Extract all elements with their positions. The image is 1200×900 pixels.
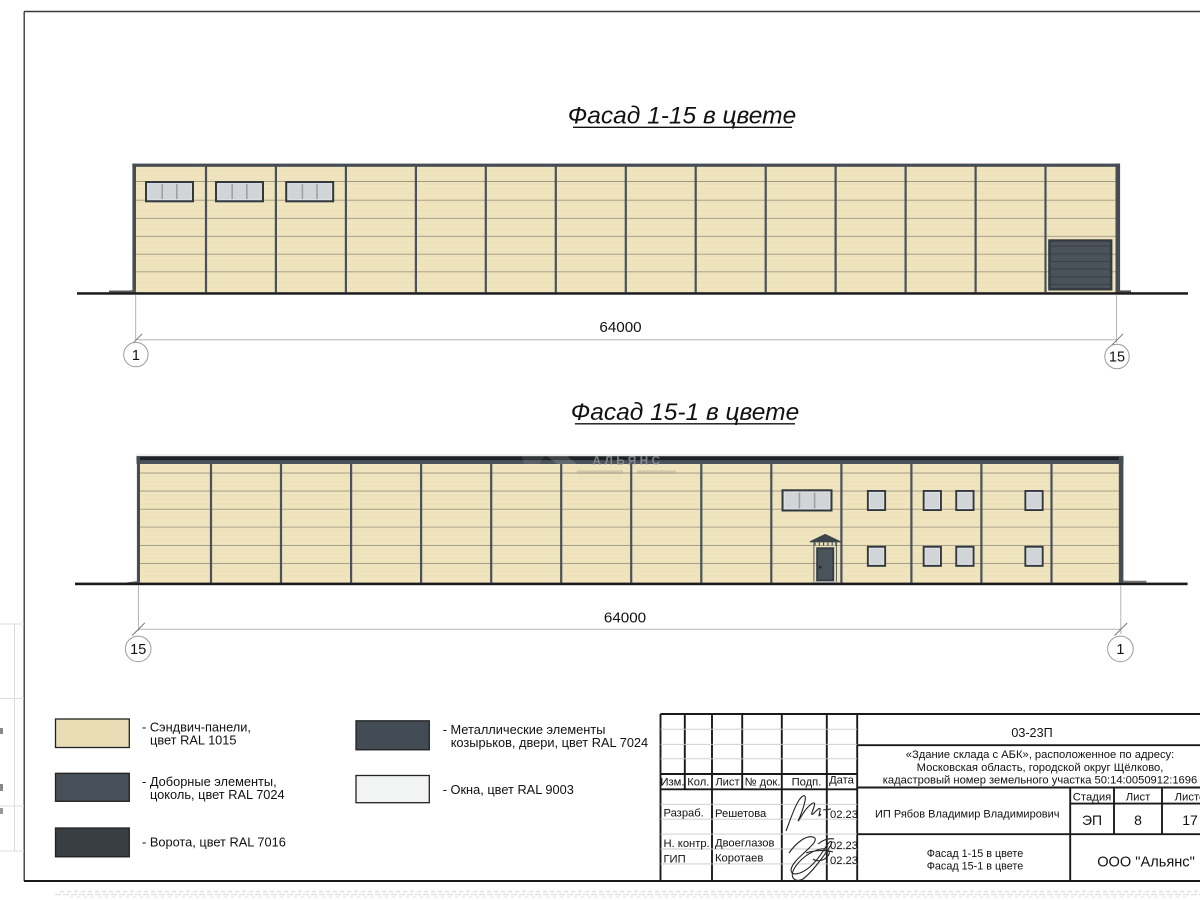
svg-text:15: 15 [130,642,146,658]
svg-text:цоколь, цвет RAL 7024: цоколь, цвет RAL 7024 [150,787,285,802]
svg-text:«Здание склада с АБК», располо: «Здание склада с АБК», расположенное по … [906,749,1174,761]
svg-text:ИП Рябов Владимир Владимирович: ИП Рябов Владимир Владимирович [875,809,1060,821]
svg-text:Двоеглазов: Двоеглазов [715,838,775,850]
svg-text:Коротаев: Коротаев [715,853,763,865]
svg-text:кадастровый номер земельного у: кадастровый номер земельного участка 50:… [883,774,1197,786]
svg-text:ГИП: ГИП [664,854,686,866]
svg-text:цвет RAL 1015: цвет RAL 1015 [150,732,237,747]
svg-text:ООО "Альянс": ООО "Альянс" [1097,855,1195,871]
svg-text:15: 15 [1109,350,1125,366]
svg-text:Изм.: Изм. [661,777,685,789]
svg-text:Фасад 1-15 в цвете: Фасад 1-15 в цвете [927,848,1024,860]
svg-text:Фасад 15-1 в цвете: Фасад 15-1 в цвете [927,860,1024,872]
svg-text:Дата: Дата [829,775,855,787]
svg-text:Листов: Листов [1175,792,1200,804]
svg-text:8: 8 [1134,812,1142,828]
svg-text:- Окна, цвет RAL 9003: - Окна, цвет RAL 9003 [443,782,574,797]
svg-text:Разраб.: Разраб. [664,808,704,820]
svg-text:Лист: Лист [715,777,739,789]
svg-text:02.23: 02.23 [830,809,858,821]
svg-text:Подп.: Подп. [792,777,822,789]
svg-text:- Ворота, цвет RAL 7016: - Ворота, цвет RAL 7016 [142,835,286,850]
svg-text:Н. контр.: Н. контр. [664,838,710,850]
svg-text:ЭП: ЭП [1082,812,1102,828]
svg-text:64000: 64000 [599,319,641,336]
svg-text:64000: 64000 [604,609,646,626]
svg-text:Московская область, городской: Московская область, городской округ Щёлк… [917,762,1164,774]
svg-text:17: 17 [1182,812,1198,828]
svg-text:АЛЬЯНС: АЛЬЯНС [593,454,664,468]
svg-text:Стадия: Стадия [1073,792,1112,804]
svg-text:Кол.: Кол. [687,777,709,789]
svg-text:Фасад 15-1 в цвете: Фасад 15-1 в цвете [571,399,799,426]
svg-text:03-23П: 03-23П [1011,726,1052,740]
svg-text:Фасад 1-15 в цвете: Фасад 1-15 в цвете [568,103,796,130]
svg-text:Лист: Лист [1126,792,1151,804]
svg-text:1: 1 [1116,642,1124,658]
svg-text:02.23: 02.23 [830,855,858,867]
svg-text:1: 1 [132,348,140,364]
svg-text:козырьков, двери, цвет RAL 702: козырьков, двери, цвет RAL 7024 [451,735,648,750]
svg-text:№ док.: № док. [745,777,781,789]
svg-text:02.23: 02.23 [830,840,858,852]
svg-text:Решетова: Решетова [715,808,767,820]
